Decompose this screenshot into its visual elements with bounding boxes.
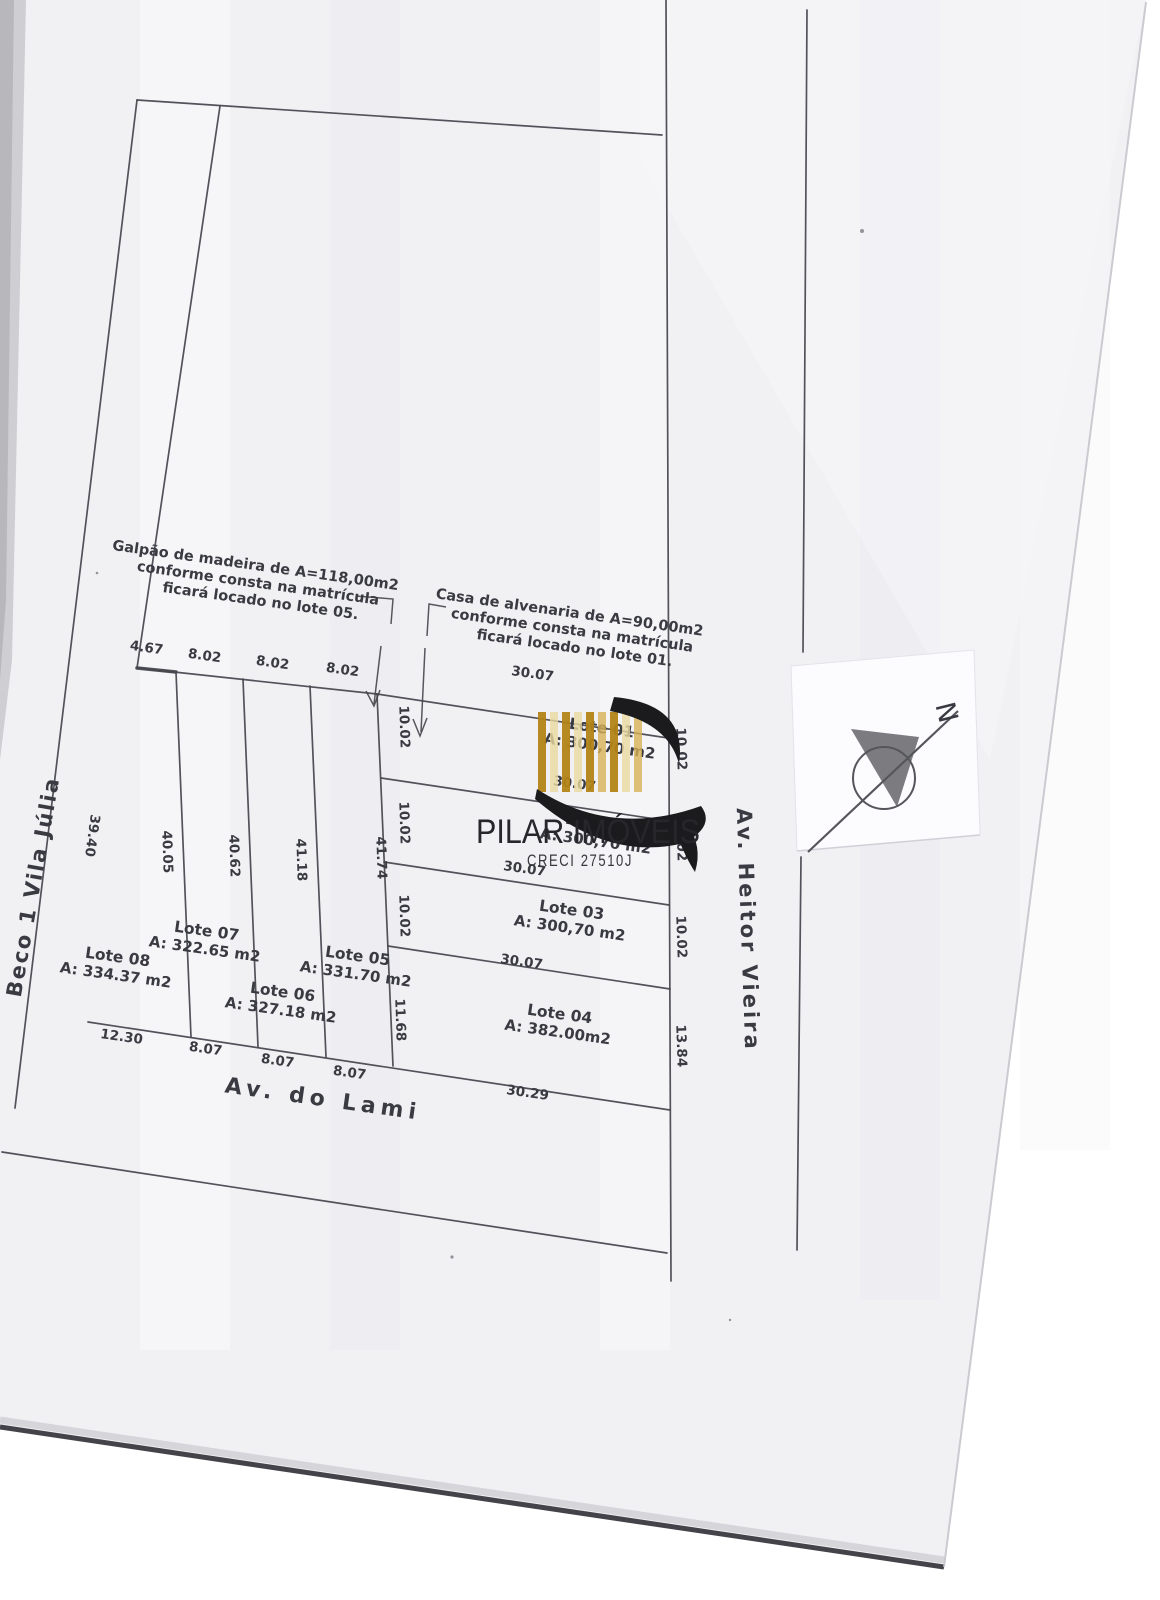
logo-bar <box>634 712 642 792</box>
logo-bar <box>586 712 594 792</box>
logo-bar <box>562 712 570 792</box>
measurement-label: 41.74 <box>372 836 389 879</box>
logo-title: PILAR IMÓVEIS <box>476 813 700 851</box>
north-arrow-slip: N <box>791 650 980 852</box>
logo-bar <box>610 712 618 792</box>
logo-subtitle: CRECI 27510J <box>527 852 633 870</box>
logo-bar <box>550 712 558 792</box>
logo-bar <box>538 712 546 792</box>
measurement-label: 10.02 <box>395 894 412 937</box>
measurement-label: 40.05 <box>158 830 175 873</box>
logo-bar <box>598 712 606 792</box>
measurement-label: 10.02 <box>395 705 412 748</box>
measurement-label: 10.02 <box>395 801 412 844</box>
logo-bars-icon <box>538 712 642 792</box>
scanned-survey-plan: 4.678.028.028.0230.0730.0730.0730.0730.2… <box>0 0 1160 1600</box>
measurement-label: 11.68 <box>391 998 408 1041</box>
measurement-label: 41.18 <box>292 838 309 881</box>
logo-bar <box>622 712 630 792</box>
measurement-label: 13.84 <box>672 1024 689 1067</box>
measurement-label: 10.02 <box>672 915 689 958</box>
measurement-label: 40.62 <box>225 834 242 877</box>
plot-plan-drawing: 4.678.028.028.0230.0730.0730.0730.0730.2… <box>0 0 1160 1600</box>
logo-bar <box>574 712 582 792</box>
